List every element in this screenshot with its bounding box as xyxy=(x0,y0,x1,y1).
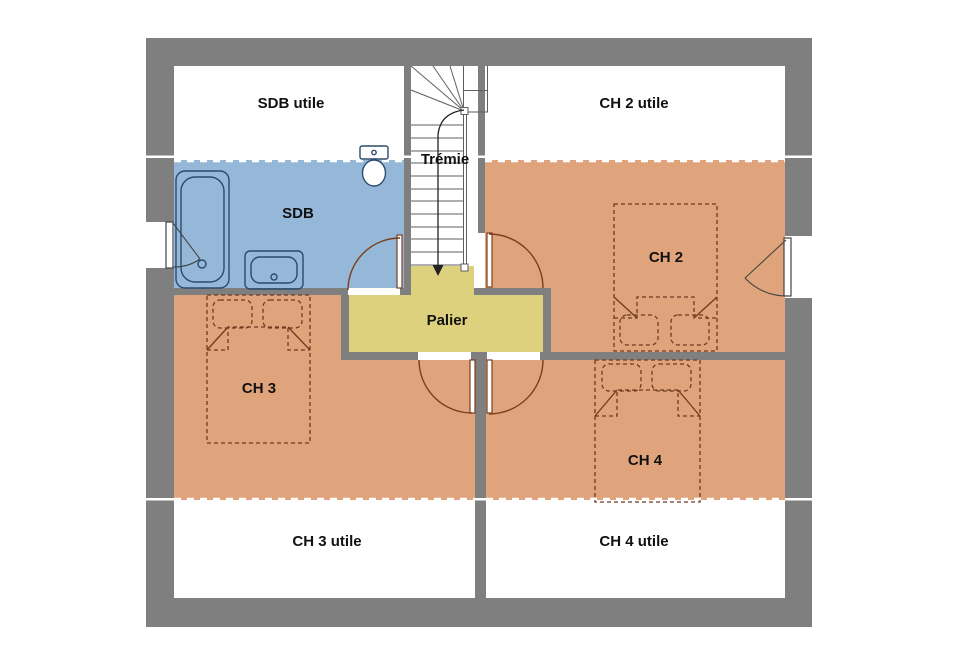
toilet-icon xyxy=(360,146,388,186)
tick xyxy=(785,498,812,501)
wall-stair-left xyxy=(404,66,411,295)
wall-palier-top-right xyxy=(474,288,551,295)
wall-sdb-bottom-stub xyxy=(400,288,411,295)
label-ch3-utile: CH 3 utile xyxy=(292,533,361,550)
tick xyxy=(146,156,174,159)
wall-ch3-ch4-divider xyxy=(475,360,486,598)
wall-ch2-ch4 xyxy=(540,352,785,360)
tick xyxy=(475,498,486,501)
opening-sdb xyxy=(348,288,400,295)
opening-ch3 xyxy=(418,352,471,360)
label-sdb-utile: SDB utile xyxy=(258,95,325,112)
label-sdb: SDB xyxy=(282,205,314,222)
wall-palier-bottom-stub xyxy=(471,352,487,360)
wall-palier-bottom-left xyxy=(341,352,418,360)
tick xyxy=(478,156,485,159)
wall-palier-left xyxy=(341,288,349,360)
tick xyxy=(785,156,812,159)
label-palier: Palier xyxy=(427,312,468,329)
wall-palier-right xyxy=(543,288,551,360)
room-ch4 xyxy=(486,360,785,500)
label-ch2: CH 2 xyxy=(649,249,683,266)
label-ch4-utile: CH 4 utile xyxy=(599,533,668,550)
tick xyxy=(146,498,174,501)
label-tremie: Trémie xyxy=(421,151,469,168)
tick xyxy=(404,156,411,159)
wall-stair-right xyxy=(478,66,485,233)
label-ch4: CH 4 xyxy=(628,452,663,469)
floor-plan: SDB utile CH 2 utile Trémie SDB CH 2 Pal… xyxy=(0,0,960,665)
label-ch2-utile: CH 2 utile xyxy=(599,95,668,112)
floor-plan-drawing: SDB utile CH 2 utile Trémie SDB CH 2 Pal… xyxy=(0,0,960,665)
opening-ch4 xyxy=(487,352,540,360)
label-ch3: CH 3 xyxy=(242,380,276,397)
